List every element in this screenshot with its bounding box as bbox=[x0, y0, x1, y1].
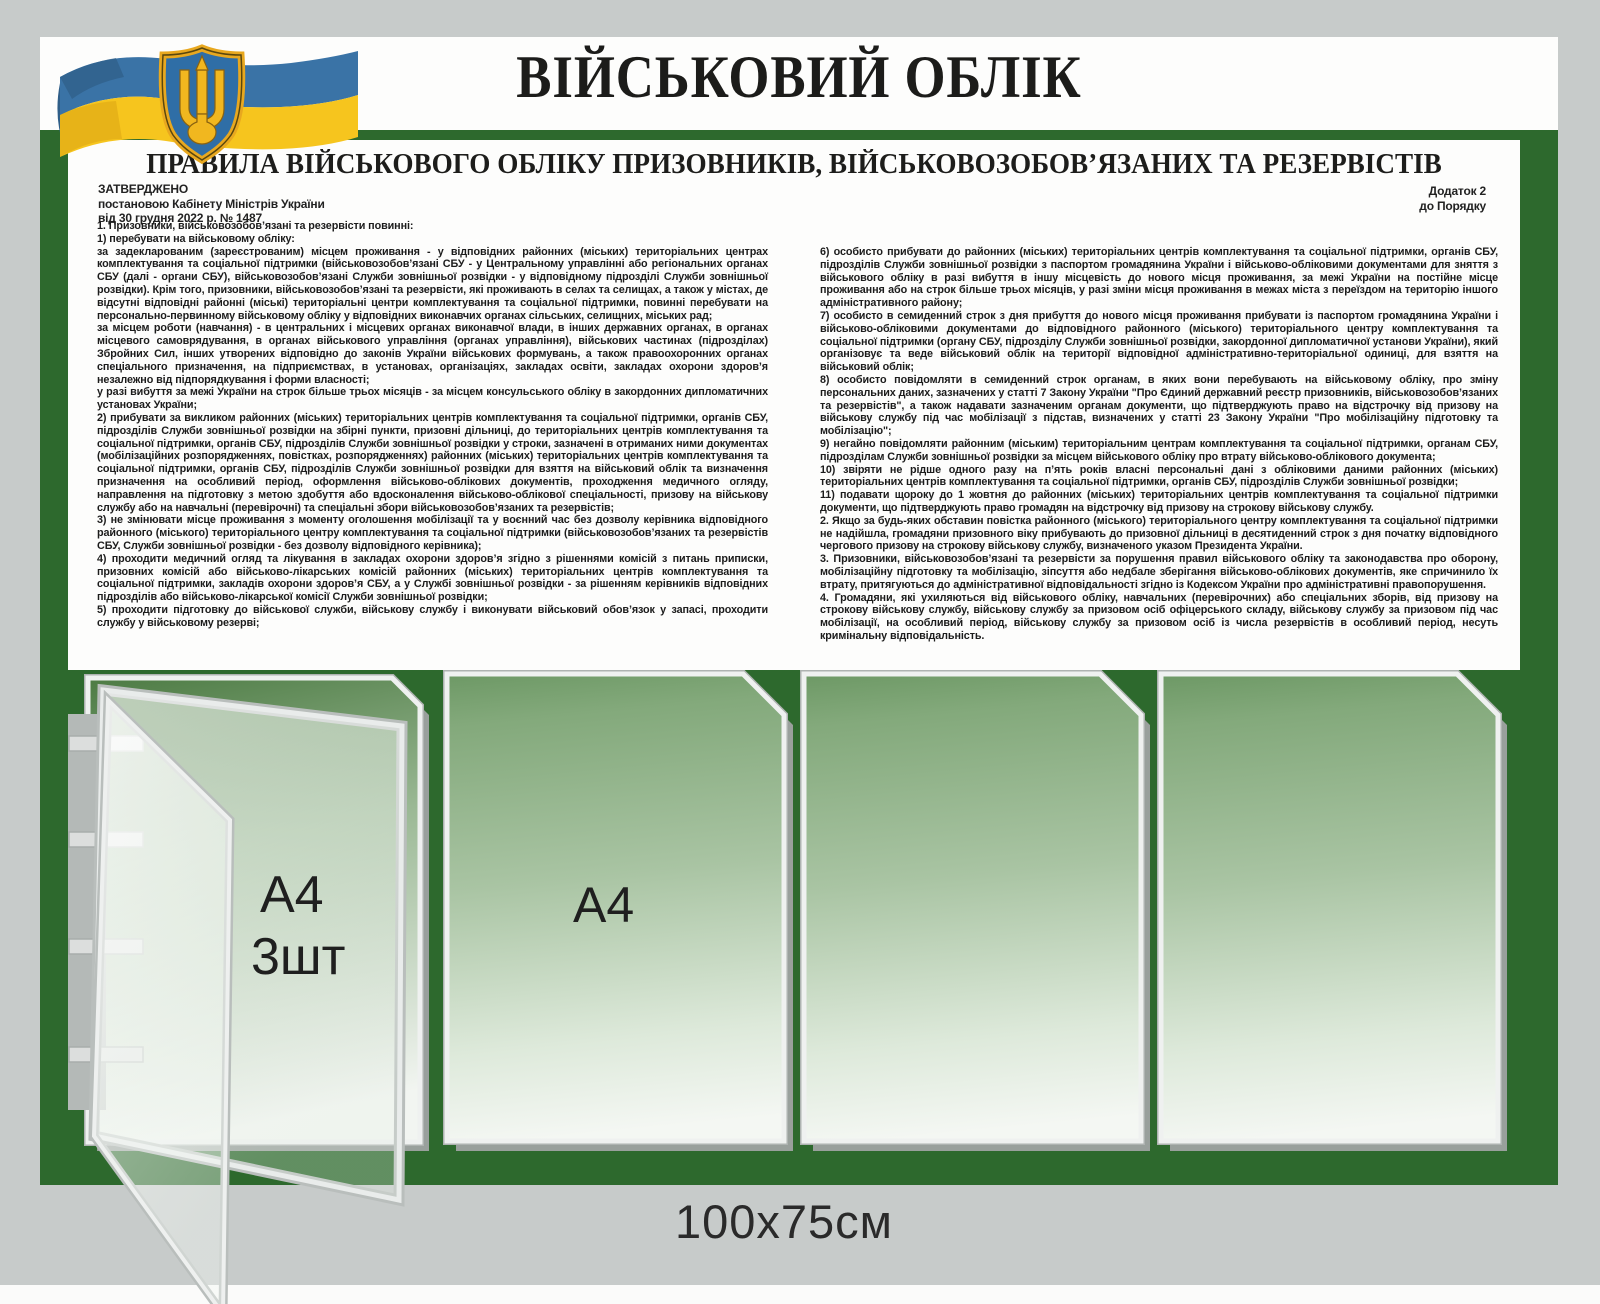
rule-paragraph: 3) не змінювати місце проживання з момен… bbox=[97, 514, 768, 552]
annex-line: до Порядку bbox=[1419, 199, 1486, 214]
rule-paragraph: у разі вибуття за межі України на строк … bbox=[97, 386, 768, 412]
open-pocket-label-size: A4 bbox=[260, 866, 324, 924]
pocket-open-flip-system: A4 3шт bbox=[55, 664, 655, 1304]
approval-line: постановою Кабінету Міністрів України bbox=[98, 197, 325, 212]
rules-column-right: 6) особисто прибувати до районних (міськ… bbox=[820, 220, 1498, 643]
stand-mockup: ВІЙСЬКОВИЙ ОБЛІК ПРАВИЛА ВІЙСЬКОВОГО О bbox=[0, 0, 1600, 1304]
ukraine-tryzub-emblem-icon bbox=[154, 44, 250, 164]
rules-text-columns: 1. Призовники, військовозобов’язані та р… bbox=[97, 220, 1498, 643]
approval-line: ЗАТВЕРДЖЕНО bbox=[98, 182, 325, 197]
annex-note: Додаток 2 до Порядку bbox=[1419, 184, 1486, 214]
rule-paragraph: за місцем роботи (навчання) - в централь… bbox=[97, 322, 768, 386]
rule-paragraph: за задекларованим (зареєстрованим) місце… bbox=[97, 246, 768, 323]
rule-paragraph: 6) особисто прибувати до районних (міськ… bbox=[820, 246, 1498, 310]
rule-paragraph: 2) прибувати за викликом районних (міськ… bbox=[97, 412, 768, 514]
rule-paragraph: 7) особисто в семиденний строк з дня при… bbox=[820, 310, 1498, 374]
pocket-a4-4 bbox=[1157, 670, 1509, 1154]
rule-paragraph: 4. Громадяни, які ухиляються від військо… bbox=[820, 592, 1498, 643]
rule-paragraph: 1) перебувати на військовому обліку: bbox=[97, 233, 768, 246]
open-pocket-label-count: 3шт bbox=[251, 928, 345, 986]
rule-paragraph: 9) негайно повідомляти районним (міським… bbox=[820, 438, 1498, 464]
rule-paragraph: 11) подавати щороку до 1 жовтня до район… bbox=[820, 489, 1498, 515]
rule-paragraph: 10) звіряти не рідше одного разу на п’ят… bbox=[820, 464, 1498, 490]
rule-paragraph: 4) проходити медичний огляд та лікування… bbox=[97, 553, 768, 604]
rule-paragraph: 8) особисто повідомляти в семиденний стр… bbox=[820, 374, 1498, 438]
rule-paragraph: 3. Призовники, військовозобов’язані та р… bbox=[820, 553, 1498, 591]
rule-paragraph: 5) проходити підготовку до військової сл… bbox=[97, 604, 768, 630]
annex-line: Додаток 2 bbox=[1419, 184, 1486, 199]
pocket-a4-3 bbox=[800, 670, 1152, 1154]
rules-column-left: 1. Призовники, військовозобов’язані та р… bbox=[97, 220, 768, 643]
rule-paragraph: 1. Призовники, військовозобов’язані та р… bbox=[97, 220, 768, 233]
rule-paragraph: 2. Якщо за будь-яких обставин повістка р… bbox=[820, 515, 1498, 553]
rules-document: ПРАВИЛА ВІЙСЬКОВОГО ОБЛІКУ ПРИЗОВНИКІВ, … bbox=[68, 140, 1520, 670]
approval-stamp: ЗАТВЕРДЖЕНО постановою Кабінету Міністрі… bbox=[98, 182, 325, 226]
